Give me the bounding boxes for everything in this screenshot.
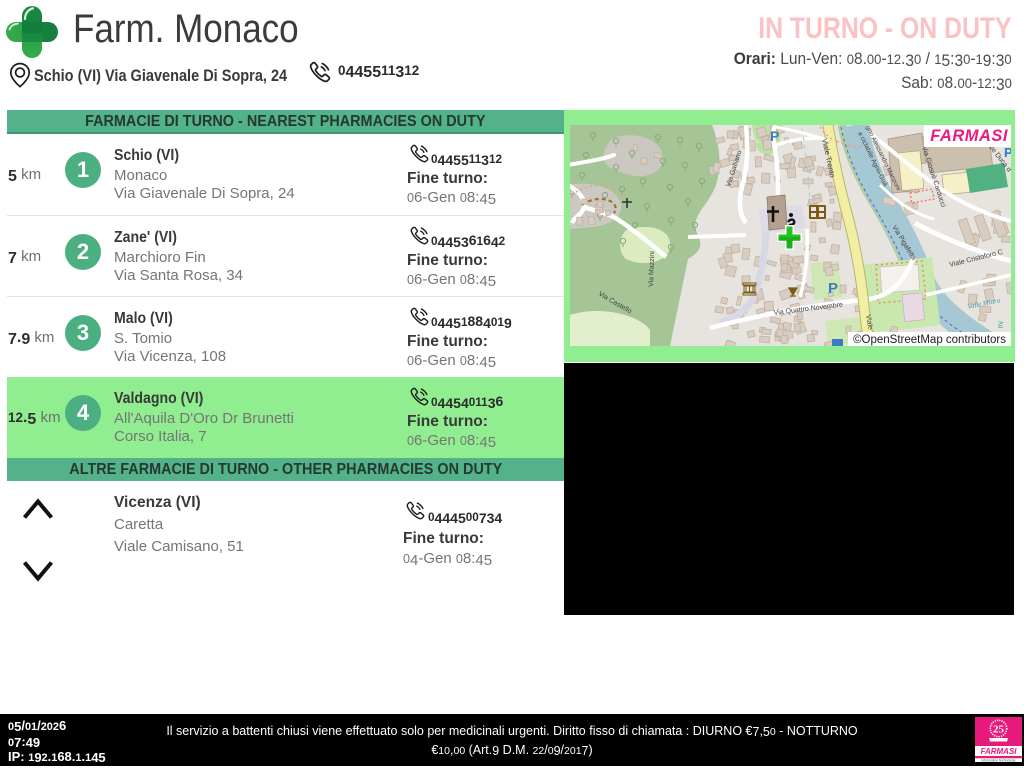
svg-text:FARMASI: FARMASI (981, 747, 1018, 756)
svg-text:FARMASI: FARMASI (930, 127, 1008, 145)
svg-text:information technology: information technology (981, 758, 1015, 762)
svg-text:P: P (828, 280, 838, 297)
svg-text:P: P (770, 128, 779, 144)
svg-text:Via Mazzini: Via Mazzini (648, 251, 656, 287)
svg-text:25: 25 (993, 724, 1005, 736)
svg-text:P: P (1004, 145, 1011, 160)
svg-text:©OpenStreetMap contributors: ©OpenStreetMap contributors (853, 334, 1006, 346)
